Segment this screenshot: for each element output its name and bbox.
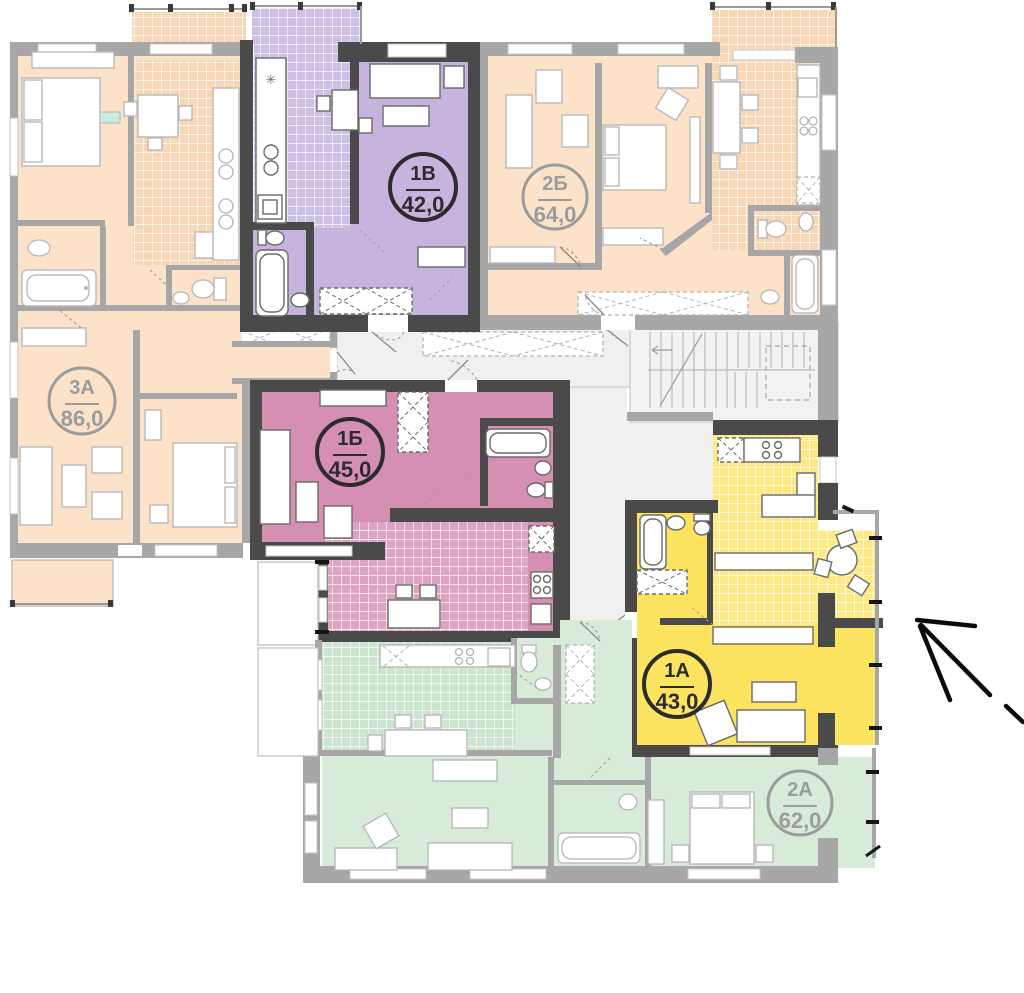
staircase — [605, 322, 838, 422]
svg-text:1Б: 1Б — [337, 428, 363, 450]
wardrobe-icon — [578, 292, 748, 315]
kitchen-counter — [380, 645, 515, 667]
wardrobe-icon — [398, 392, 428, 452]
kitchen-counter: ✳ — [256, 58, 286, 223]
svg-text:2А: 2А — [787, 779, 813, 801]
svg-text:42,0: 42,0 — [402, 192, 445, 217]
svg-text:3А: 3А — [69, 377, 95, 399]
apartment-1v[interactable]: ✳ — [240, 2, 480, 352]
svg-text:62,0: 62,0 — [779, 808, 822, 833]
wardrobe-icon — [320, 288, 412, 314]
svg-text:86,0: 86,0 — [61, 406, 104, 431]
bathtub-icon — [22, 270, 96, 306]
apartment-1b[interactable] — [250, 360, 570, 645]
floor-plan-canvas: ✳ — [0, 0, 1024, 993]
wardrobe-icon — [637, 570, 687, 594]
svg-text:1В: 1В — [410, 163, 436, 185]
bed-icon — [22, 78, 100, 166]
wardrobe-icon — [566, 645, 594, 703]
kitchen-counter — [529, 526, 554, 624]
svg-text:1А: 1А — [664, 660, 690, 682]
svg-text:2Б: 2Б — [542, 173, 568, 195]
balcony-1b — [258, 562, 318, 645]
sink-icon — [28, 240, 50, 256]
apartment-2b[interactable] — [480, 2, 838, 330]
svg-text:✳: ✳ — [266, 72, 277, 87]
pointer-arrow-icon — [917, 620, 1023, 722]
staircase-outer-wall — [818, 322, 838, 422]
svg-text:43,0: 43,0 — [656, 689, 699, 714]
toilet-icon — [258, 230, 284, 245]
svg-text:45,0: 45,0 — [329, 457, 372, 482]
svg-text:64,0: 64,0 — [534, 202, 577, 227]
balcony-3a — [12, 560, 113, 606]
kitchen-counter — [797, 65, 820, 205]
